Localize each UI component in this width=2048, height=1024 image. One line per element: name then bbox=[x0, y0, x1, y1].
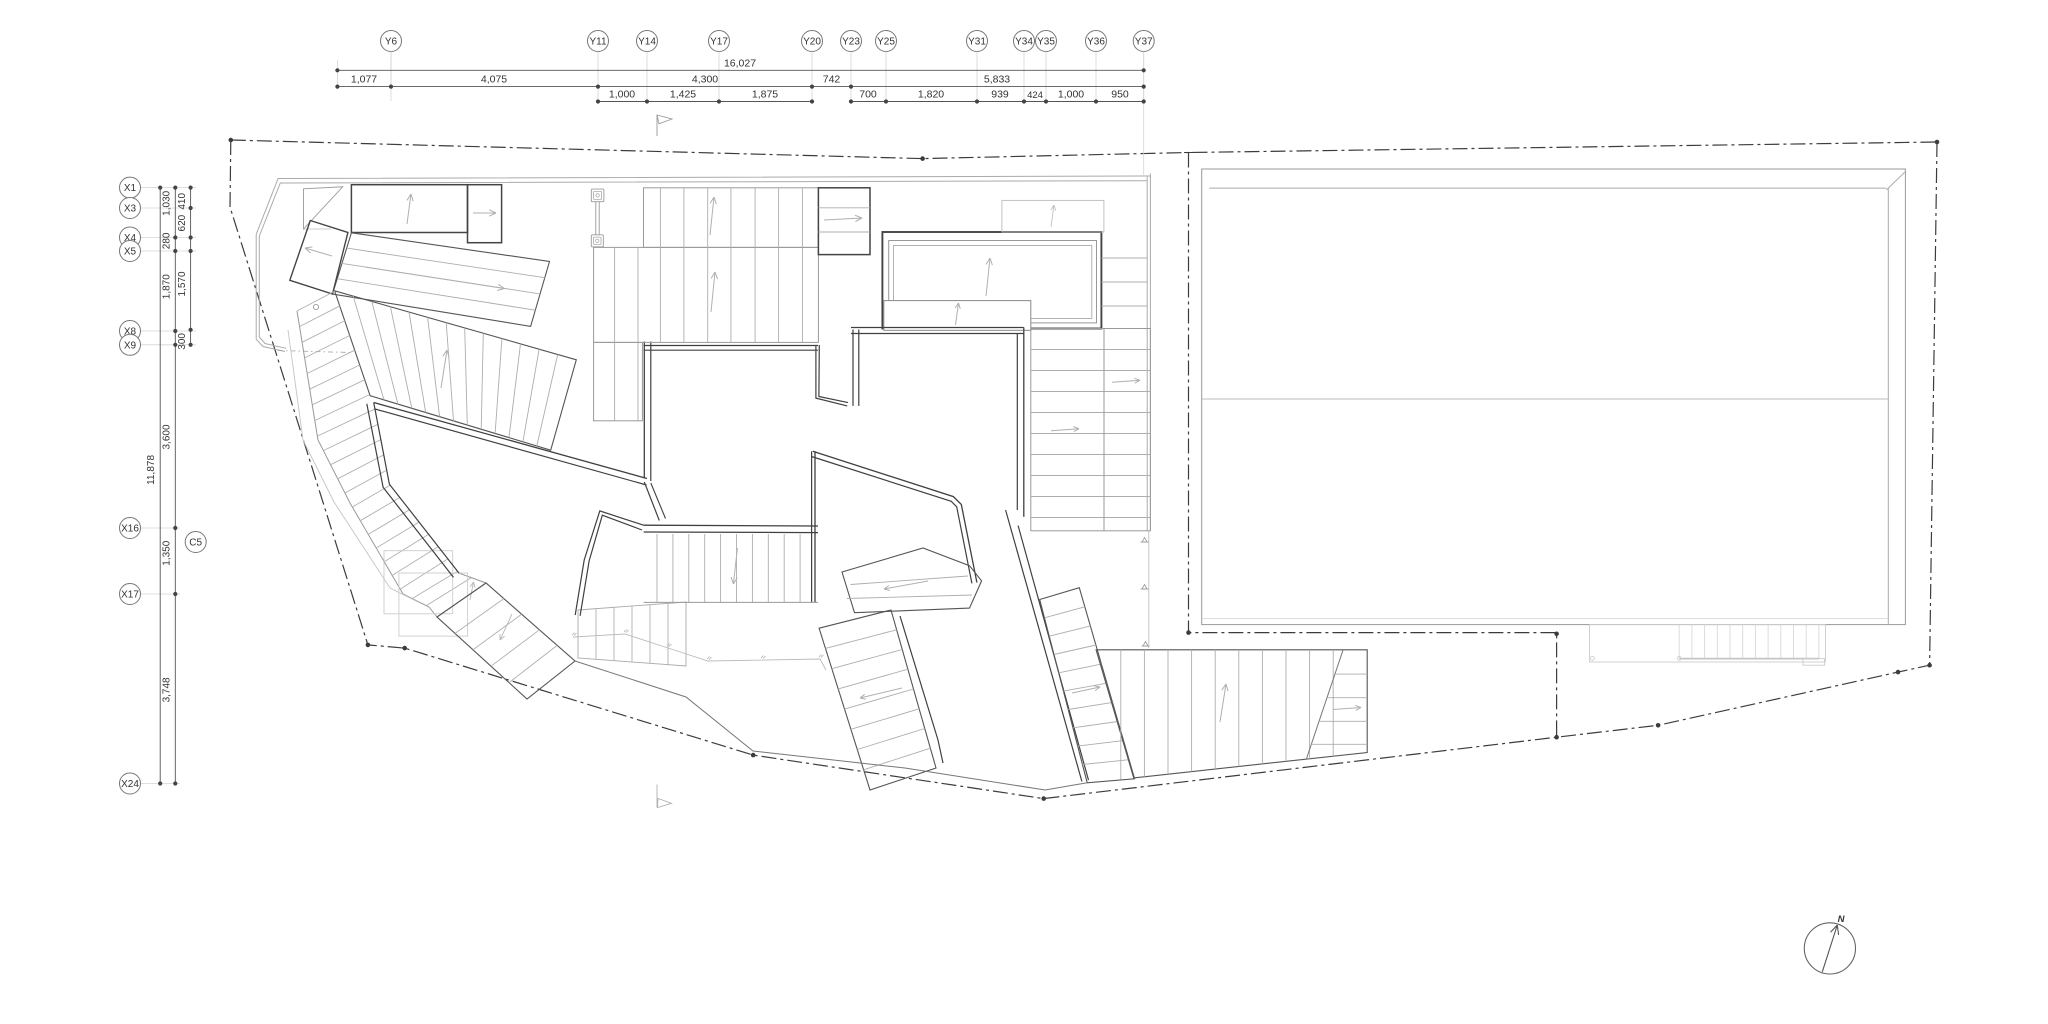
svg-text:Y14: Y14 bbox=[638, 37, 656, 48]
svg-text:1,870: 1,870 bbox=[162, 274, 173, 299]
svg-text:620: 620 bbox=[177, 214, 188, 231]
svg-text:Y31: Y31 bbox=[968, 37, 986, 48]
svg-text:11,878: 11,878 bbox=[146, 455, 157, 485]
svg-text:1,000: 1,000 bbox=[609, 89, 635, 101]
svg-text:280: 280 bbox=[162, 232, 173, 249]
svg-text:1,820: 1,820 bbox=[918, 89, 944, 101]
svg-text:4,075: 4,075 bbox=[481, 74, 507, 86]
svg-text:Y25: Y25 bbox=[877, 37, 895, 48]
svg-text:4,300: 4,300 bbox=[692, 74, 718, 86]
svg-text:X24: X24 bbox=[121, 779, 139, 790]
svg-text:Y35: Y35 bbox=[1037, 37, 1055, 48]
svg-text:Y34: Y34 bbox=[1015, 37, 1033, 48]
svg-text:950: 950 bbox=[1111, 89, 1129, 101]
svg-text:X17: X17 bbox=[121, 590, 139, 601]
svg-text:X9: X9 bbox=[124, 340, 137, 351]
svg-text:Y6: Y6 bbox=[385, 37, 398, 48]
svg-text:Y36: Y36 bbox=[1087, 37, 1105, 48]
svg-text:1,350: 1,350 bbox=[162, 540, 173, 565]
svg-text:410: 410 bbox=[177, 193, 188, 210]
svg-text:1,030: 1,030 bbox=[162, 190, 173, 215]
svg-text:3,600: 3,600 bbox=[162, 424, 173, 449]
svg-text:424: 424 bbox=[1027, 90, 1043, 101]
svg-text:Y17: Y17 bbox=[710, 37, 728, 48]
svg-text:Y20: Y20 bbox=[803, 37, 821, 48]
svg-text:Y23: Y23 bbox=[842, 37, 860, 48]
svg-text:X3: X3 bbox=[124, 204, 137, 215]
svg-text:X1: X1 bbox=[124, 183, 137, 194]
svg-text:Y11: Y11 bbox=[589, 37, 606, 48]
svg-text:1,570: 1,570 bbox=[177, 271, 188, 296]
svg-text:700: 700 bbox=[859, 89, 877, 101]
svg-text:742: 742 bbox=[823, 74, 841, 86]
svg-text:N: N bbox=[1838, 914, 1846, 925]
svg-text:16,027: 16,027 bbox=[724, 58, 756, 70]
svg-text:300: 300 bbox=[177, 333, 188, 350]
svg-text:X5: X5 bbox=[124, 247, 137, 258]
svg-text:1,425: 1,425 bbox=[670, 89, 696, 101]
svg-text:C5: C5 bbox=[189, 538, 202, 549]
svg-text:Y37: Y37 bbox=[1135, 37, 1153, 48]
svg-text:X16: X16 bbox=[121, 524, 139, 535]
svg-text:1,000: 1,000 bbox=[1058, 89, 1084, 101]
svg-text:939: 939 bbox=[991, 89, 1009, 101]
svg-text:3,748: 3,748 bbox=[162, 677, 173, 702]
svg-text:1,077: 1,077 bbox=[351, 74, 377, 86]
svg-text:1,875: 1,875 bbox=[752, 89, 778, 101]
svg-text:5,833: 5,833 bbox=[984, 74, 1010, 86]
